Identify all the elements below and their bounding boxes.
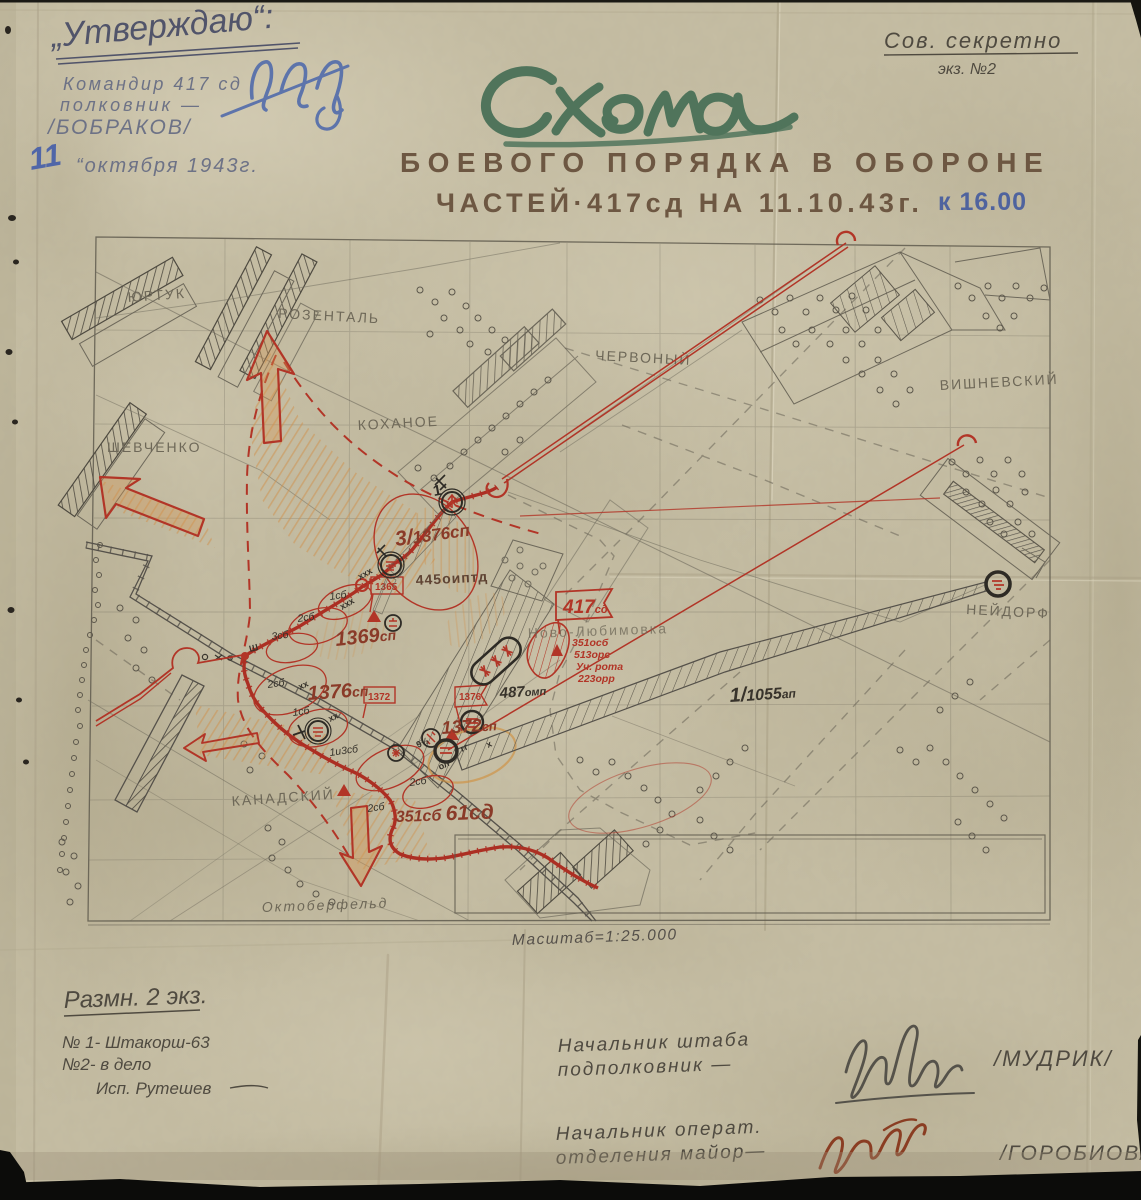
- svg-text:экз. №2: экз. №2: [938, 61, 996, 78]
- svg-text:1372: 1372: [368, 692, 391, 703]
- svg-text:№2- в дело: №2- в дело: [62, 1055, 151, 1074]
- svg-text:/МУДРИК/: /МУДРИК/: [992, 1046, 1113, 1071]
- svg-text:Размн. 2 экз.: Размн. 2 экз.: [63, 982, 208, 1014]
- svg-text:1сб: 1сб: [329, 589, 349, 603]
- svg-text:№ 1- Штакорш-63: № 1- Штакорш-63: [62, 1033, 210, 1052]
- svg-text:3сб: 3сб: [271, 629, 291, 643]
- svg-text:БОЕВОГО ПОРЯДКА В ОБОРОНЕ: БОЕВОГО ПОРЯДКА В ОБОРОНЕ: [400, 147, 1050, 178]
- svg-text:ШЕВЧЕНКО: ШЕВЧЕНКО: [107, 439, 202, 455]
- svg-text:к 16.00: к 16.00: [938, 188, 1027, 216]
- svg-text:Исп. Рутешев: Исп. Рутешев: [96, 1079, 211, 1098]
- svg-text:1сб: 1сб: [292, 705, 312, 719]
- svg-text:ЧАСТЕЙ·417сд НА 11.10.43г.: ЧАСТЕЙ·417сд НА 11.10.43г.: [436, 187, 923, 218]
- svg-text:/БОБРАКОВ/: /БОБРАКОВ/: [46, 116, 192, 139]
- svg-text:223орр: 223орр: [577, 673, 615, 685]
- svg-text:“октября 1943г.: “октября 1943г.: [76, 155, 259, 177]
- svg-text:1376: 1376: [459, 692, 482, 703]
- svg-text:Уч. рота: Уч. рота: [576, 661, 623, 673]
- svg-text:Командир 417 сд: Командир 417 сд: [63, 74, 242, 94]
- svg-text:полковник —: полковник —: [60, 95, 202, 115]
- svg-text:11: 11: [26, 137, 64, 177]
- svg-text:513орс: 513орс: [574, 649, 610, 661]
- svg-text:Сов. секретно: Сов. секретно: [884, 28, 1062, 53]
